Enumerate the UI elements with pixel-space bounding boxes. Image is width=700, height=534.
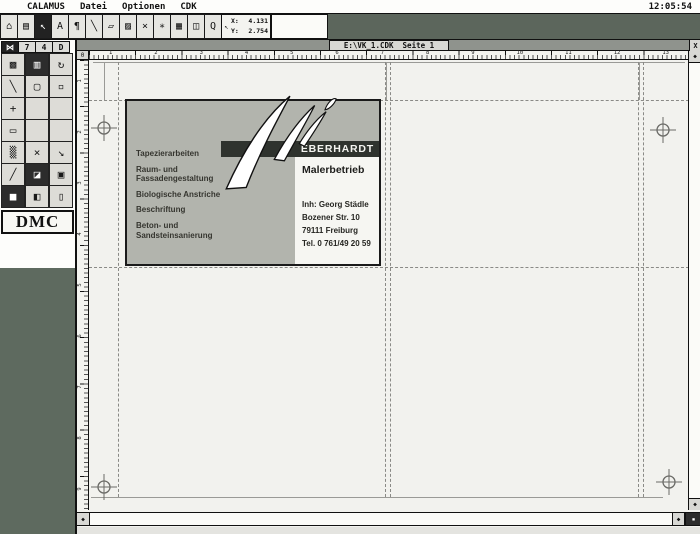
x-label: X: bbox=[231, 17, 239, 26]
scroll-left-button[interactable]: ◆ bbox=[77, 513, 90, 525]
fill-dark-tool-icon[interactable]: ■ bbox=[1, 185, 25, 208]
window-resize-corner[interactable]: ▪ bbox=[685, 513, 700, 525]
pattern-tool-icon[interactable]: ▩ bbox=[1, 53, 25, 76]
toolbar: ⌂ ▤ ↖ A ¶ ╲ ▱ ▨ × ∗ bbox=[0, 13, 700, 40]
scroll-right-button[interactable]: ◆ bbox=[672, 513, 685, 525]
sidebar-tool-grid: ▩▥↻╲▢▫+▭▒×↘╱◪▣■◧▯ bbox=[0, 53, 75, 208]
scroll-down-button[interactable]: ◆ bbox=[689, 498, 700, 510]
rotate-tool-icon[interactable]: ↻ bbox=[49, 53, 73, 76]
trim-tick-left bbox=[104, 62, 105, 100]
page-frame-tool-icon[interactable]: ▥ bbox=[25, 53, 49, 76]
rect-outline-tool-icon[interactable]: ▫ bbox=[49, 75, 73, 98]
guide-line-v-left bbox=[118, 62, 119, 497]
ruler-number: 2 bbox=[77, 129, 83, 135]
menu-item[interactable]: Optionen bbox=[122, 2, 165, 12]
cylinder-tool-icon[interactable]: ▯ bbox=[49, 185, 73, 208]
toolbar-blank-panel bbox=[271, 14, 328, 39]
registration-mark-bottom-right bbox=[656, 469, 682, 495]
corner-tool-icon[interactable]: ◪ bbox=[25, 163, 49, 186]
y-label: Y: bbox=[231, 27, 239, 36]
sidebar-tab[interactable]: ⋈ bbox=[1, 41, 19, 53]
vertical-scrollbar[interactable]: ◆ ◆ bbox=[688, 51, 700, 510]
layers-tool-icon[interactable]: ◧ bbox=[25, 185, 49, 208]
tool-glyph: ⌂ bbox=[6, 22, 12, 32]
menu-item[interactable]: CALAMUS bbox=[27, 2, 65, 12]
ruler-number: 1 bbox=[77, 78, 83, 84]
line-tool-icon[interactable]: ╲ bbox=[85, 14, 103, 39]
vertical-ruler: 123456789 bbox=[77, 60, 89, 510]
card-phone: Tel. 0 761/49 20 59 bbox=[302, 237, 371, 250]
tool-glyph: ↖ bbox=[40, 22, 46, 32]
empty-cell[interactable] bbox=[49, 119, 73, 142]
ruler-number: 1 bbox=[109, 51, 112, 56]
menu-items: CALAMUSDateiOptionenCDK bbox=[0, 2, 197, 12]
empty-cell[interactable] bbox=[25, 119, 49, 142]
service-item: Tapezierarbeiten bbox=[136, 149, 251, 159]
coordinate-display: ↖ X: 4.131 Y: 2.754 bbox=[221, 14, 271, 39]
frame-tool-icon[interactable]: ◫ bbox=[187, 14, 205, 39]
ruler-number: 4 bbox=[77, 231, 83, 237]
document-canvas[interactable]: EBERHARDT TapezierarbeitenRaum- und Fass… bbox=[89, 60, 689, 510]
fullscreen-button[interactable]: X bbox=[689, 40, 700, 51]
guide-line-h2 bbox=[89, 267, 689, 268]
ruler-number: 9 bbox=[471, 51, 474, 56]
screen: CALAMUSDateiOptionenCDK 12:05:54 ⌂ ▤ ↖ A… bbox=[0, 0, 700, 534]
sidebar-tab[interactable]: 7 bbox=[18, 41, 36, 53]
horizontal-scroll-track[interactable] bbox=[90, 513, 672, 525]
tool-glyph: ▦ bbox=[176, 22, 182, 32]
toolbar-filler bbox=[328, 14, 700, 39]
document-window: E:\VK_1.CDK Seite 1 X 0 1234567891011121… bbox=[76, 40, 700, 534]
pen-tool-icon[interactable]: ╱ bbox=[1, 163, 25, 186]
window-title: E:\VK_1.CDK Seite 1 bbox=[329, 40, 449, 51]
guide-line-v-mid-a bbox=[385, 62, 386, 497]
trim-tick-mid bbox=[386, 62, 387, 100]
horizontal-ruler-numbers: 12345678910111213 bbox=[89, 51, 689, 56]
ruler-number: 7 bbox=[381, 51, 384, 56]
pointer-tool-icon[interactable]: ↖ bbox=[34, 14, 52, 39]
window-bottom-strip bbox=[77, 527, 700, 534]
vertical-scroll-track[interactable] bbox=[689, 63, 700, 497]
ruler-number: 4 bbox=[245, 51, 248, 56]
ruler-number: 10 bbox=[517, 51, 524, 56]
tool-glyph: ◫ bbox=[193, 22, 199, 32]
service-list: TapezierarbeitenRaum- und Fassadengestal… bbox=[136, 149, 251, 246]
ruler-number: 3 bbox=[77, 180, 83, 186]
text-tool-icon[interactable]: A bbox=[51, 14, 69, 39]
service-item: Beschriftung bbox=[136, 205, 251, 215]
ruler-number: 7 bbox=[77, 384, 83, 390]
ruler-number: 8 bbox=[426, 51, 429, 56]
tool-glyph: ▤ bbox=[23, 22, 29, 32]
trim-line-bottom bbox=[91, 497, 663, 498]
ruler-origin-button[interactable]: 0 bbox=[77, 51, 89, 60]
magnifier-tool-icon[interactable]: Q bbox=[204, 14, 222, 39]
trim-tick-right bbox=[639, 62, 640, 100]
move-tool-icon[interactable]: + bbox=[1, 97, 25, 120]
menu-item[interactable]: CDK bbox=[180, 2, 196, 12]
tool-glyph: ∗ bbox=[159, 22, 165, 32]
clipboard-tool-icon[interactable]: ⌂ bbox=[0, 14, 18, 39]
tool-glyph: ¶ bbox=[74, 22, 80, 32]
menu-item[interactable]: Datei bbox=[80, 2, 107, 12]
tool-glyph: × bbox=[142, 22, 148, 32]
tool-glyph: A bbox=[57, 22, 63, 32]
ruler-number: 6 bbox=[77, 333, 83, 339]
guide-line-v-right-b bbox=[643, 62, 644, 497]
x-value: 4.131 bbox=[239, 17, 268, 26]
menu-bar: CALAMUSDateiOptionenCDK 12:05:54 bbox=[0, 0, 700, 13]
card-city: 79111 Freiburg bbox=[302, 224, 371, 237]
business-card-frame[interactable]: EBERHARDT TapezierarbeitenRaum- und Fass… bbox=[125, 99, 381, 266]
registration-mark-top-left bbox=[91, 115, 117, 141]
resize-tool-icon[interactable]: ↘ bbox=[49, 141, 73, 164]
service-item: Beton- und Sandsteinsanierung bbox=[136, 221, 251, 240]
ruler-number: 12 bbox=[614, 51, 621, 56]
delete-frame-tool-icon[interactable]: × bbox=[25, 141, 49, 164]
tool-glyph: Q bbox=[210, 22, 216, 32]
y-value: 2.754 bbox=[239, 27, 268, 36]
ruler-number: 11 bbox=[565, 51, 572, 56]
trim-line-top bbox=[93, 62, 685, 63]
card-street: Bozener Str. 10 bbox=[302, 211, 371, 224]
dmc-logo: DMC bbox=[1, 210, 74, 234]
diagonal-line-tool-icon[interactable]: ╲ bbox=[1, 75, 25, 98]
registration-mark-top-right bbox=[650, 117, 676, 143]
frame-tool-icon[interactable]: ▭ bbox=[1, 119, 25, 142]
vertical-ruler-numbers: 123456789 bbox=[77, 60, 88, 510]
card-subtitle: Malerbetrieb bbox=[302, 164, 364, 176]
ruler-number: 9 bbox=[77, 486, 83, 492]
sidebar-filler bbox=[0, 268, 75, 534]
sidebar-tab[interactable]: 4 bbox=[35, 41, 53, 53]
empty-cell[interactable] bbox=[49, 97, 73, 120]
ruler-number: 5 bbox=[77, 282, 83, 288]
sidebar-tabs: ⋈74D bbox=[0, 40, 75, 53]
texture-tool-icon[interactable]: ▒ bbox=[1, 141, 25, 164]
box-tool-icon[interactable]: ▱ bbox=[102, 14, 120, 39]
tool-glyph: ╲ bbox=[91, 22, 97, 32]
ruler-number: 2 bbox=[154, 51, 157, 56]
tool-sidebar: ⋈74D ▩▥↻╲▢▫+▭▒×↘╱◪▣■◧▯ DMC bbox=[0, 40, 76, 534]
rounded-rect-tool-icon[interactable]: ▢ bbox=[25, 75, 49, 98]
horizontal-scrollbar[interactable]: ◆ ◆ ▪ bbox=[77, 512, 700, 526]
card-owner: Inh: Georg Städle bbox=[302, 198, 371, 211]
empty-cell[interactable] bbox=[25, 97, 49, 120]
toolbar-icon-strip: ⌂ ▤ ↖ A ¶ ╲ ▱ ▨ × ∗ bbox=[0, 14, 221, 39]
tool-glyph: ▨ bbox=[125, 22, 131, 32]
card-address: Inh: Georg Städle Bozener Str. 10 79111 … bbox=[302, 198, 371, 250]
registration-mark-bottom-left bbox=[91, 474, 117, 500]
ruler-number: 6 bbox=[335, 51, 338, 56]
scroll-up-button[interactable]: ◆ bbox=[689, 51, 700, 63]
fill-tool-icon[interactable]: ▨ bbox=[119, 14, 137, 39]
tool-glyph: ▱ bbox=[108, 22, 114, 32]
ruler-number: 5 bbox=[290, 51, 293, 56]
clock: 12:05:54 bbox=[649, 2, 700, 12]
delete-tool-icon[interactable]: × bbox=[136, 14, 154, 39]
window-title-bar[interactable]: E:\VK_1.CDK Seite 1 X bbox=[77, 40, 700, 51]
sidebar-tab[interactable]: D bbox=[52, 41, 70, 53]
ruler-number: 13 bbox=[662, 51, 669, 56]
pointer-icon: ↖ bbox=[222, 23, 231, 31]
pages-tool-icon[interactable]: ▤ bbox=[17, 14, 35, 39]
guide-line-v-right-a bbox=[638, 62, 639, 497]
coordinate-values: X: 4.131 Y: 2.754 bbox=[231, 17, 270, 36]
ruler-number: 8 bbox=[77, 435, 83, 441]
star-tool-icon[interactable]: ∗ bbox=[153, 14, 171, 39]
guide-line-v-mid-b bbox=[390, 62, 391, 497]
service-item: Biologische Anstriche bbox=[136, 190, 251, 200]
ruler-number: 3 bbox=[200, 51, 203, 56]
camera-tool-icon[interactable]: ▣ bbox=[49, 163, 73, 186]
raster-tool-icon[interactable]: ▦ bbox=[170, 14, 188, 39]
paragraph-tool-icon[interactable]: ¶ bbox=[68, 14, 86, 39]
service-item: Raum- und Fassadengestaltung bbox=[136, 165, 251, 184]
horizontal-ruler: 12345678910111213 bbox=[89, 51, 689, 60]
